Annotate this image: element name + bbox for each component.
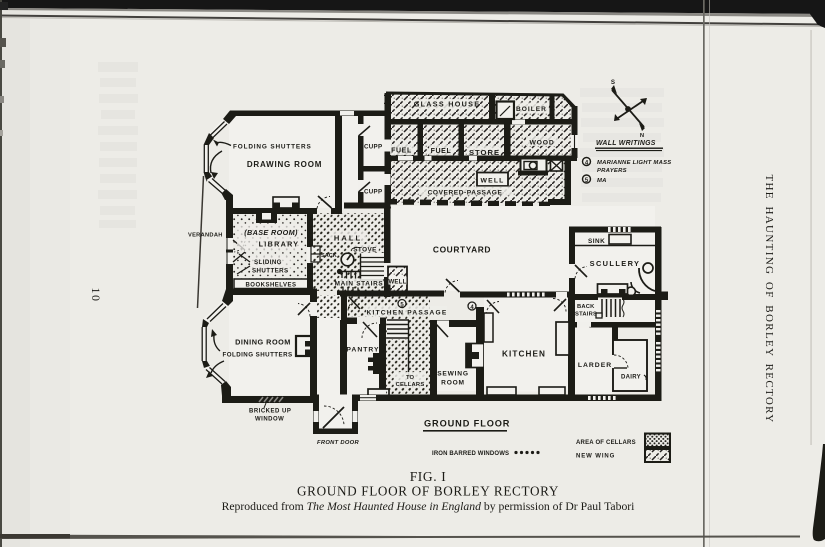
- svg-text:CELLARS: CELLARS: [396, 382, 425, 388]
- svg-text:MA: MA: [597, 178, 607, 184]
- svg-text:PRAYERS: PRAYERS: [597, 168, 627, 174]
- svg-text:COVERED-PASSAGE: COVERED-PASSAGE: [428, 190, 503, 197]
- svg-text:(BASE ROOM): (BASE ROOM): [244, 228, 298, 237]
- svg-text:WELL: WELL: [388, 279, 406, 286]
- svg-text:SHUTTERS: SHUTTERS: [252, 268, 289, 275]
- svg-text:WALL WRITINGS: WALL WRITINGS: [596, 140, 656, 147]
- svg-text:FOLDING SHUTTERS: FOLDING SHUTTERS: [233, 144, 312, 151]
- svg-text:BOILER: BOILER: [516, 106, 547, 113]
- svg-text:THE HAUNTING OF BORLEY RECTORY: THE HAUNTING OF BORLEY RECTORY: [763, 174, 775, 423]
- svg-text:DAIRY: DAIRY: [621, 375, 641, 381]
- svg-text:COURTYARD: COURTYARD: [433, 245, 491, 255]
- svg-text:SINK: SINK: [588, 238, 605, 245]
- svg-text:HALL: HALL: [334, 234, 362, 243]
- svg-text:NEW WING: NEW WING: [576, 454, 615, 460]
- svg-text:FRONT DOOR: FRONT DOOR: [317, 440, 359, 446]
- svg-text:FUEL: FUEL: [431, 148, 452, 155]
- svg-text:PANTRY: PANTRY: [346, 347, 379, 354]
- svg-text:BOOKSHELVES: BOOKSHELVES: [245, 283, 296, 289]
- svg-text:WINDOW: WINDOW: [255, 417, 284, 423]
- svg-text:MAIN STAIRS: MAIN STAIRS: [335, 281, 384, 288]
- svg-text:N: N: [640, 133, 644, 139]
- svg-text:VERANDAH: VERANDAH: [188, 233, 223, 239]
- svg-text:CUPP: CUPP: [364, 144, 382, 151]
- svg-text:GLASS HOUSE: GLASS HOUSE: [414, 100, 481, 109]
- svg-text:Reproduced from The Most Haunt: Reproduced from The Most Haunted House i…: [222, 500, 636, 513]
- svg-text:BACK: BACK: [577, 304, 595, 310]
- svg-text:10: 10: [89, 288, 103, 303]
- svg-text:ROOM: ROOM: [441, 380, 465, 387]
- svg-text:SCULLERY: SCULLERY: [590, 259, 641, 268]
- svg-text:SEWING: SEWING: [437, 371, 469, 378]
- svg-text:IRON BARRED WINDOWS: IRON BARRED WINDOWS: [432, 451, 509, 457]
- svg-text:LIBRARY: LIBRARY: [259, 240, 300, 249]
- svg-text:FUEL: FUEL: [391, 148, 412, 155]
- svg-text:GROUND FLOOR: GROUND FLOOR: [424, 419, 510, 429]
- svg-text:BRICKED UP: BRICKED UP: [249, 409, 291, 415]
- svg-text:DINING ROOM: DINING ROOM: [235, 338, 291, 347]
- svg-text:TO: TO: [406, 375, 414, 381]
- svg-text:FIG. I: FIG. I: [410, 469, 447, 484]
- svg-text:LARDER: LARDER: [578, 362, 612, 369]
- svg-text:KITCHEN PASSAGE: KITCHEN PASSAGE: [367, 310, 448, 317]
- svg-text:FOLDING SHUTTERS: FOLDING SHUTTERS: [223, 352, 293, 359]
- svg-text:GROUND FLOOR OF BORLEY RECTORY: GROUND FLOOR OF BORLEY RECTORY: [297, 484, 559, 499]
- svg-text:MARIANNE LIGHT MASS: MARIANNE LIGHT MASS: [597, 160, 671, 166]
- svg-text:AREA OF CELLARS: AREA OF CELLARS: [576, 440, 636, 446]
- svg-text:WELL: WELL: [480, 178, 504, 185]
- svg-text:CUPP: CUPP: [364, 189, 382, 196]
- svg-text:SLIDING: SLIDING: [254, 259, 282, 266]
- svg-text:DRAWING ROOM: DRAWING ROOM: [247, 160, 322, 169]
- svg-text:KITCHEN: KITCHEN: [502, 350, 546, 359]
- svg-text:S: S: [611, 79, 615, 86]
- svg-text:STAIRS: STAIRS: [575, 312, 597, 318]
- svg-text:WOOD: WOOD: [529, 140, 554, 147]
